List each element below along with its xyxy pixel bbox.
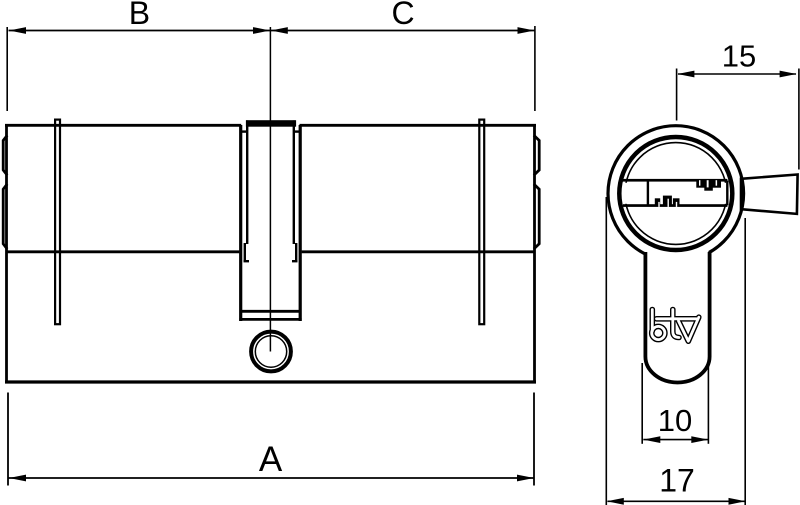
- svg-text:17: 17: [659, 463, 695, 499]
- svg-text:C: C: [391, 0, 414, 31]
- svg-text:B: B: [129, 0, 150, 31]
- svg-text:10: 10: [658, 403, 692, 438]
- svg-text:A: A: [259, 440, 283, 479]
- svg-text:15: 15: [722, 39, 756, 74]
